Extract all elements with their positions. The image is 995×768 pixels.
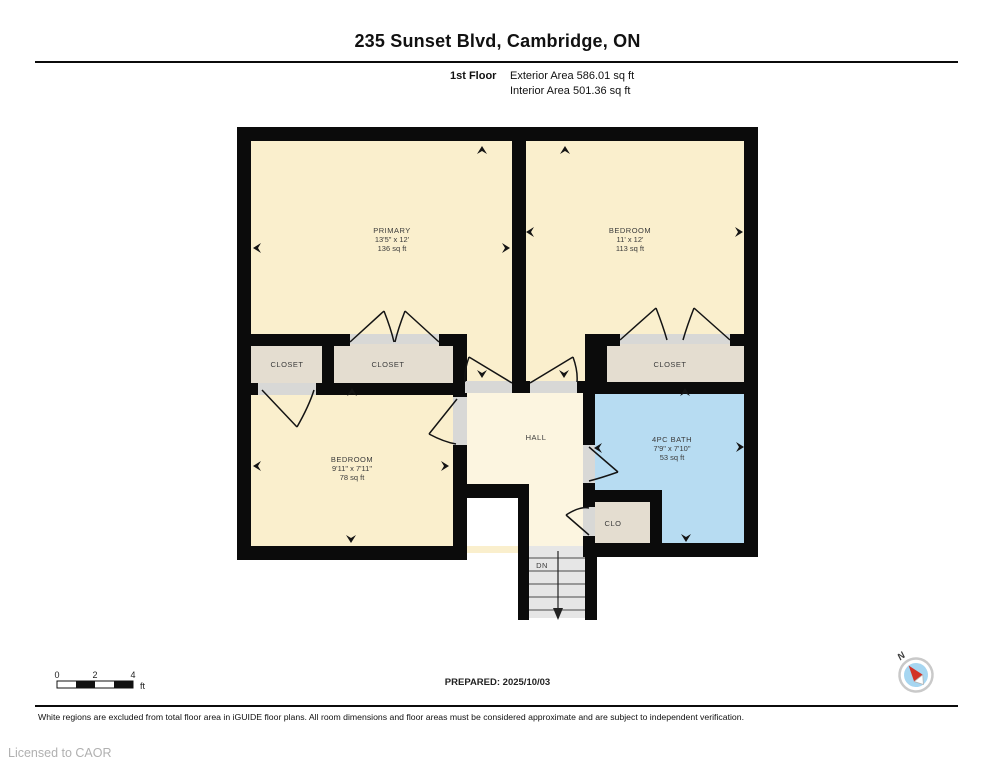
svg-text:BEDROOM: BEDROOM	[609, 226, 651, 235]
svg-text:78 sq ft: 78 sq ft	[340, 473, 366, 482]
svg-text:13'5" x 12': 13'5" x 12'	[375, 235, 410, 244]
svg-text:4PC BATH: 4PC BATH	[652, 435, 692, 444]
footer-divider	[35, 705, 958, 707]
stairs-dn-label: DN	[536, 561, 548, 570]
licensed-text: Licensed to CAOR	[8, 746, 112, 760]
floorplan-drawing: PRIMARY 13'5" x 12' 136 sq ft BEDROOM 11…	[0, 0, 995, 768]
closet-mid-label: CLOSET	[371, 360, 404, 369]
svg-text:BEDROOM: BEDROOM	[331, 455, 373, 464]
svg-text:7'9" x 7'10": 7'9" x 7'10"	[654, 444, 691, 453]
svg-text:53 sq ft: 53 sq ft	[660, 453, 686, 462]
room-hall-label: HALL	[526, 433, 547, 442]
closet-left-label: CLOSET	[270, 360, 303, 369]
clo-label: CLO	[605, 519, 622, 528]
closet-right-label: CLOSET	[653, 360, 686, 369]
disclaimer-text: White regions are excluded from total fl…	[38, 712, 744, 722]
compass-icon: N	[885, 642, 939, 698]
floorplan-page: 235 Sunset Blvd, Cambridge, ON 1st Floor…	[0, 0, 995, 768]
svg-text:11' x 12': 11' x 12'	[617, 235, 644, 244]
room-primary: PRIMARY 13'5" x 12' 136 sq ft	[373, 226, 411, 253]
svg-text:136 sq ft: 136 sq ft	[378, 244, 408, 253]
svg-text:PRIMARY: PRIMARY	[373, 226, 411, 235]
svg-text:113 sq ft: 113 sq ft	[616, 244, 645, 253]
prepared-date: PREPARED: 2025/10/03	[0, 677, 995, 688]
svg-text:9'11" x 7'11": 9'11" x 7'11"	[332, 464, 372, 473]
